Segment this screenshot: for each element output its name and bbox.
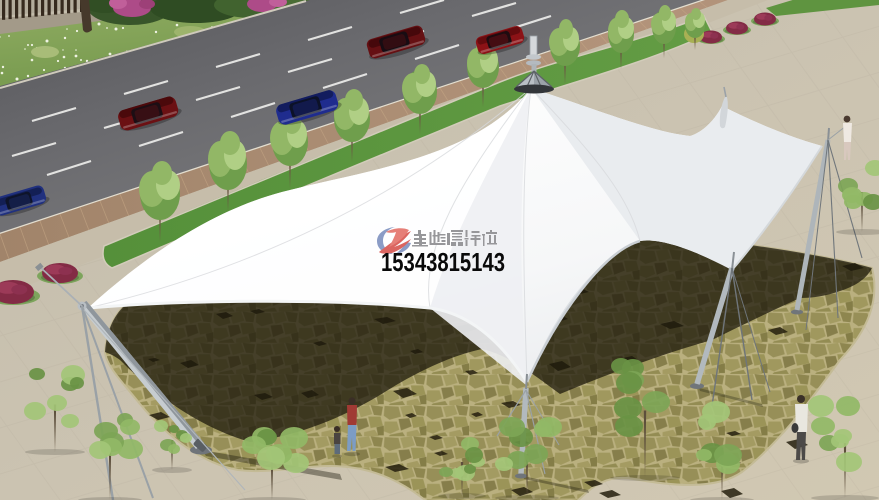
svg-text:15343815143: 15343815143	[381, 247, 505, 277]
